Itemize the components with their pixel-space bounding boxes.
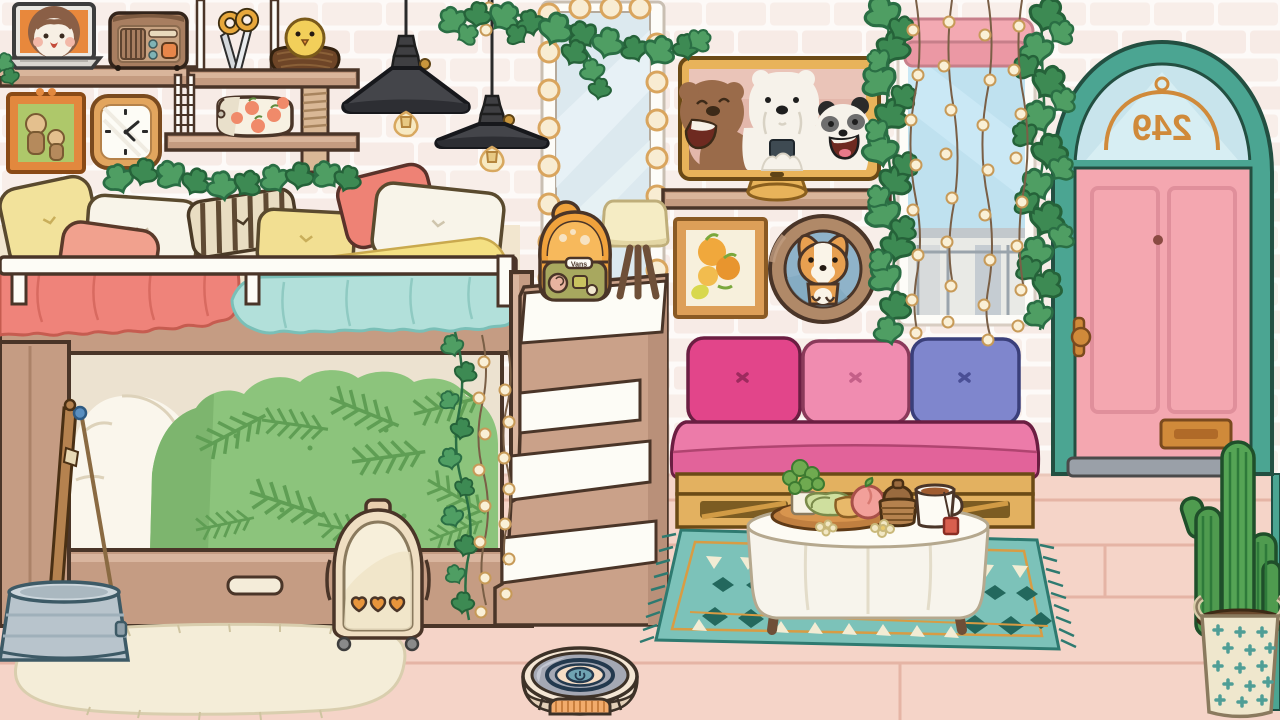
svg-text:249: 249 xyxy=(1132,107,1192,148)
svg-text:Vans: Vans xyxy=(571,262,587,269)
